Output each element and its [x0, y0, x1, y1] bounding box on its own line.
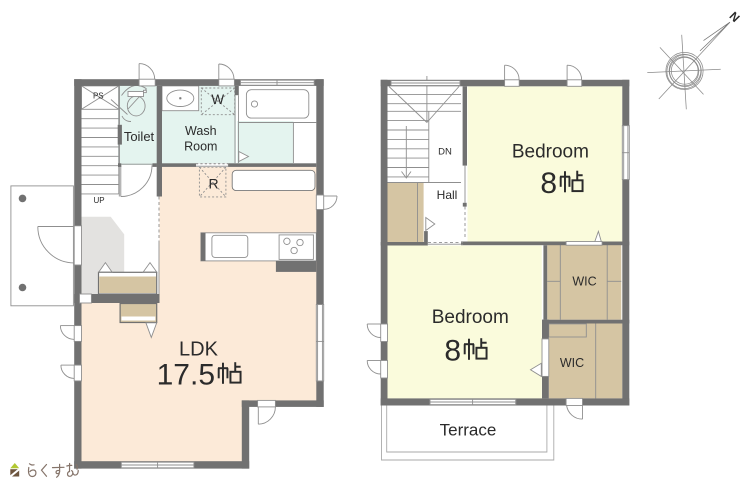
svg-text:Bedroom: Bedroom — [432, 307, 509, 328]
svg-text:R: R — [208, 175, 218, 191]
svg-text:8: 8 — [444, 335, 461, 368]
svg-text:Bedroom: Bedroom — [512, 142, 589, 163]
svg-text:WIC: WIC — [560, 356, 584, 370]
svg-text:Wash: Wash — [185, 124, 217, 138]
svg-text:UP: UP — [93, 196, 104, 205]
svg-text:8: 8 — [540, 167, 557, 200]
svg-text:LDK: LDK — [179, 339, 219, 361]
svg-text:DN: DN — [438, 146, 452, 157]
svg-text:Room: Room — [184, 139, 217, 153]
svg-text:W: W — [211, 92, 224, 107]
svg-text:17.5: 17.5 — [157, 359, 215, 392]
svg-text:PS: PS — [93, 92, 104, 101]
svg-text:Hall: Hall — [437, 188, 458, 202]
svg-text:Toilet: Toilet — [124, 129, 155, 144]
svg-text:Terrace: Terrace — [440, 420, 497, 439]
svg-text:WIC: WIC — [572, 275, 596, 289]
